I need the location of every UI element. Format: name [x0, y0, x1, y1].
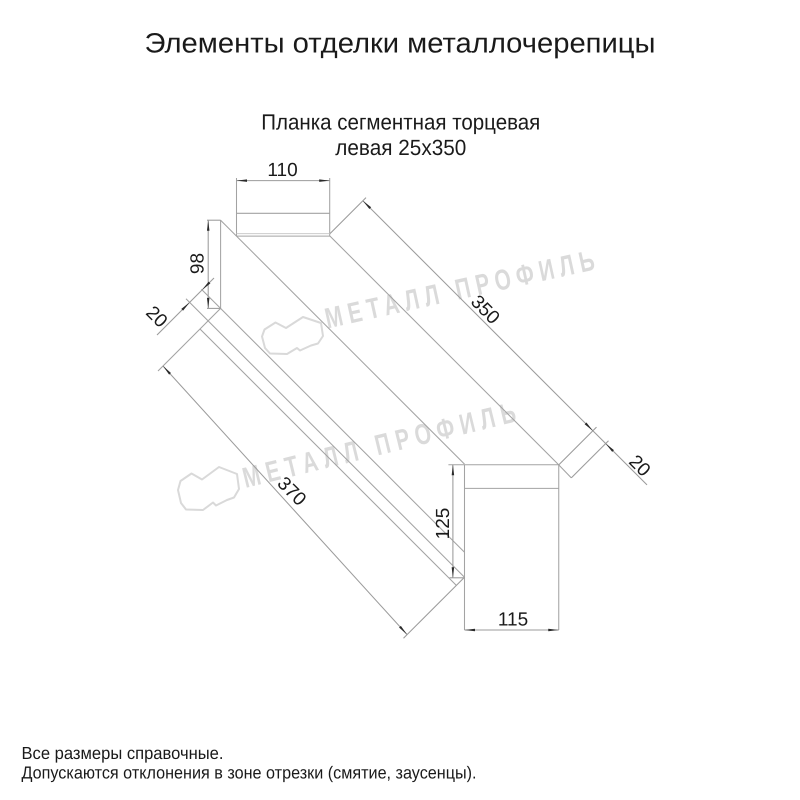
svg-text:Все размеры справочные.: Все размеры справочные. [22, 743, 224, 763]
svg-text:Элементы отделки металлочерепи: Элементы отделки металлочерепицы [145, 28, 656, 59]
svg-text:Допускаются отклонения в зоне: Допускаются отклонения в зоне отрезки (с… [22, 763, 477, 783]
svg-text:125: 125 [433, 508, 454, 540]
svg-text:98: 98 [188, 253, 209, 274]
svg-text:115: 115 [498, 610, 528, 631]
svg-text:Планка сегментная торцевая: Планка сегментная торцевая [261, 110, 540, 135]
svg-text:110: 110 [267, 160, 297, 181]
svg-text:левая 25x350: левая 25x350 [335, 135, 466, 160]
